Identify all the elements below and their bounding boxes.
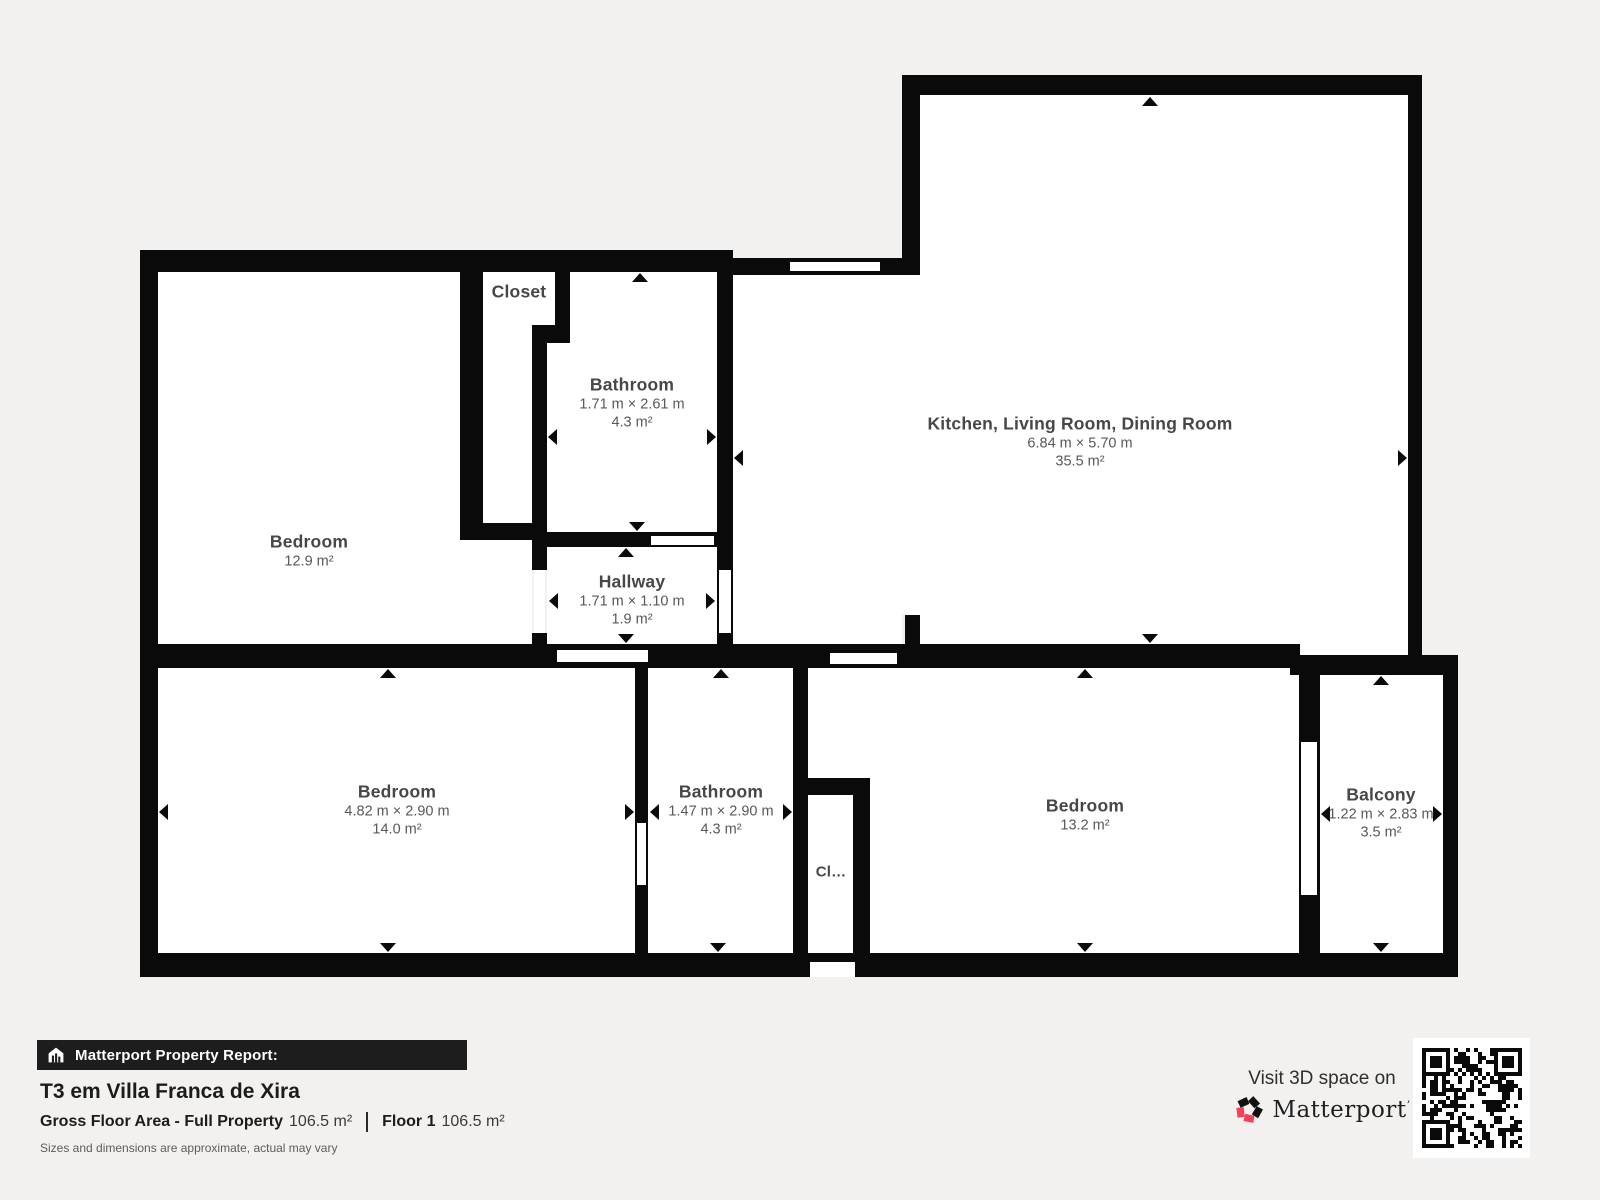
gross-floor-area-label: Gross Floor Area - Full Property	[40, 1113, 283, 1131]
room-closet-1: Closet	[492, 282, 547, 303]
matterport-wordmark: Matterport’	[1272, 1097, 1410, 1123]
room-area: 3.5 m²	[1328, 824, 1433, 842]
trademark-tick: ’	[1407, 1098, 1411, 1111]
room-bathroom-2: Bathroom 1.47 m × 2.90 m 4.3 m²	[668, 782, 773, 839]
floorplan-drawing	[0, 0, 1600, 1200]
disclaimer-text: Sizes and dimensions are approximate, ac…	[40, 1141, 337, 1155]
room-name: Bathroom	[579, 375, 684, 396]
qr-code-panel	[1413, 1038, 1530, 1158]
room-area: 14.0 m²	[344, 821, 449, 839]
room-name: Cl…	[816, 864, 847, 881]
room-bedroom-3: Bedroom 13.2 m²	[1046, 796, 1124, 835]
room-name: Kitchen, Living Room, Dining Room	[927, 414, 1232, 435]
room-name: Bedroom	[344, 782, 449, 803]
gross-floor-area-value: 106.5 m²	[289, 1113, 352, 1131]
report-header-bar: Matterport Property Report:	[37, 1040, 467, 1070]
qr-code	[1422, 1048, 1522, 1148]
room-hallway: Hallway 1.71 m × 1.10 m 1.9 m²	[579, 572, 684, 629]
room-area: 13.2 m²	[1046, 817, 1124, 835]
room-kitchen-living-dining: Kitchen, Living Room, Dining Room 6.84 m…	[927, 414, 1232, 471]
house-icon	[47, 1046, 65, 1064]
room-dimensions: 1.22 m × 2.83 m	[1328, 806, 1433, 824]
floor-area-stats: Gross Floor Area - Full Property 106.5 m…	[40, 1112, 505, 1132]
report-label: Matterport Property Report:	[75, 1047, 278, 1064]
visit-3d-text: Visit 3D space on	[1248, 1068, 1396, 1090]
property-title: T3 em Villa Franca de Xira	[40, 1080, 300, 1104]
room-dimensions: 1.71 m × 1.10 m	[579, 593, 684, 611]
room-area: 12.9 m²	[270, 553, 348, 571]
floor-value: 106.5 m²	[442, 1113, 505, 1131]
stats-divider	[366, 1112, 368, 1132]
room-name: Bedroom	[1046, 796, 1124, 817]
room-balcony: Balcony 1.22 m × 2.83 m 3.5 m²	[1328, 785, 1433, 842]
room-name: Bathroom	[668, 782, 773, 803]
matterport-logo-icon	[1233, 1094, 1264, 1125]
room-bedroom-2: Bedroom 4.82 m × 2.90 m 14.0 m²	[344, 782, 449, 839]
room-dimensions: 6.84 m × 5.70 m	[927, 435, 1232, 453]
room-area: 1.9 m²	[579, 611, 684, 629]
room-area: 35.5 m²	[927, 453, 1232, 471]
room-bedroom-1: Bedroom 12.9 m²	[270, 532, 348, 571]
room-bathroom-1: Bathroom 1.71 m × 2.61 m 4.3 m²	[579, 375, 684, 432]
room-name: Closet	[492, 282, 547, 303]
floor-label: Floor 1	[382, 1113, 435, 1131]
matterport-floorplan-report: Bedroom 12.9 m² Closet Bathroom 1.71 m ×…	[0, 0, 1600, 1200]
room-name: Hallway	[579, 572, 684, 593]
room-closet-2: Cl…	[816, 864, 847, 881]
room-area: 4.3 m²	[668, 821, 773, 839]
room-dimensions: 1.71 m × 2.61 m	[579, 396, 684, 414]
room-area: 4.3 m²	[579, 414, 684, 432]
room-dimensions: 1.47 m × 2.90 m	[668, 803, 773, 821]
room-name: Bedroom	[270, 532, 348, 553]
room-name: Balcony	[1328, 785, 1433, 806]
room-dimensions: 4.82 m × 2.90 m	[344, 803, 449, 821]
matterport-brand: Matterport’	[1233, 1094, 1410, 1125]
